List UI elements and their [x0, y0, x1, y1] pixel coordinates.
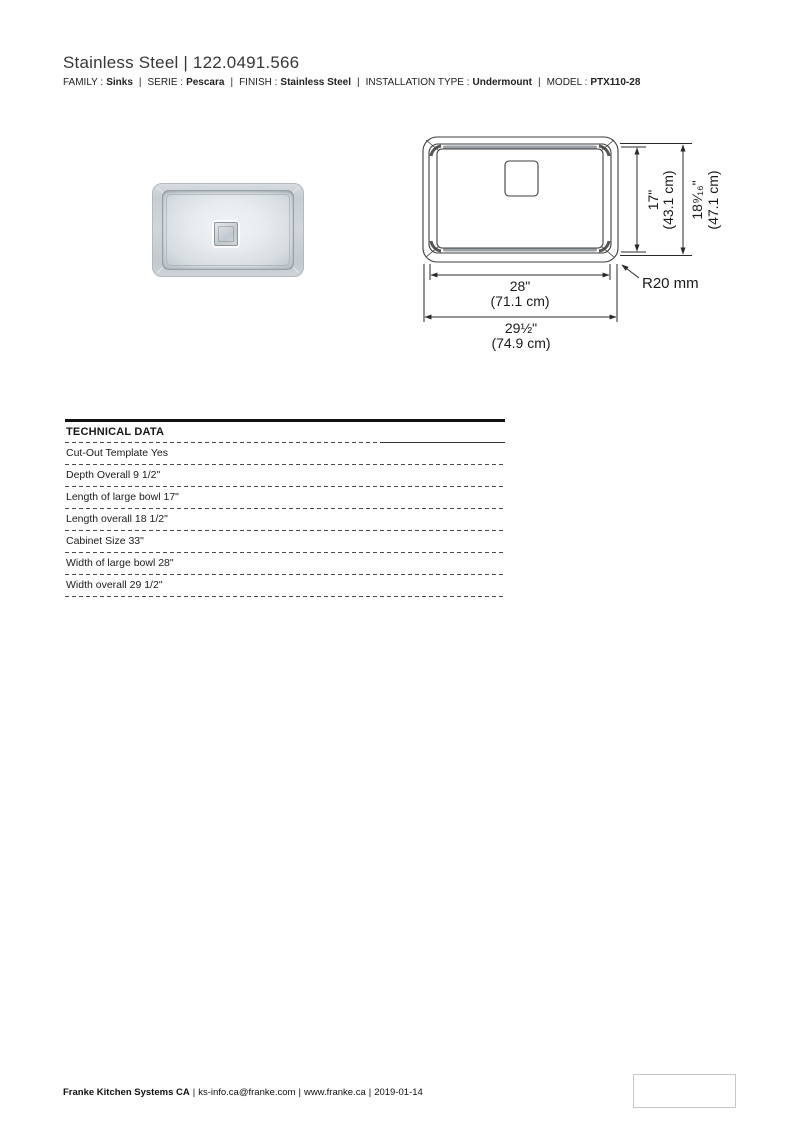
footer-website: www.franke.ca — [304, 1087, 366, 1098]
footer-date: 2019-01-14 — [374, 1087, 423, 1098]
attr-family-value: Sinks — [106, 77, 133, 88]
product-attributes: FAMILY :Sinks|SERIE :Pescara|FINISH :Sta… — [63, 77, 640, 88]
attr-finish-label: FINISH : — [239, 77, 277, 88]
drain-drawing — [505, 161, 538, 196]
table-row: Width of large bowl 28" — [65, 553, 505, 574]
row-value: 33" — [128, 535, 143, 547]
technical-drawing: 28" (71.1 cm) 29½" (74.9 cm) 17" (43.1 c… — [415, 130, 745, 362]
attr-separator: | — [230, 77, 233, 88]
table-row: Cabinet Size 33" — [65, 531, 505, 552]
attr-separator: | — [139, 77, 142, 88]
attr-separator: | — [538, 77, 541, 88]
table-row: Length of large bowl 17" — [65, 487, 505, 508]
product-photo — [152, 183, 304, 277]
row-label: Cabinet Size — [66, 535, 126, 547]
table-row: Cut-Out Template Yes — [65, 443, 505, 464]
dim-depth-inner-in: 17" — [645, 190, 661, 211]
footer-company: Franke Kitchen Systems CA — [63, 1087, 190, 1098]
dim-depth-overall-in: 18⁹⁄₁₆" — [689, 180, 705, 219]
row-label: Width overall — [66, 579, 127, 591]
row-value: 28" — [158, 557, 173, 569]
dim-width-overall-in: 29½" — [505, 320, 537, 336]
table-header-rule — [65, 442, 505, 443]
row-value: 17" — [164, 491, 179, 503]
table-row: Width overall 29 1/2" — [65, 575, 505, 596]
dim-width-inner-in: 28" — [510, 278, 531, 294]
row-value: Yes — [151, 447, 168, 459]
row-label: Length of large bowl — [66, 491, 161, 503]
row-value: 9 1/2" — [133, 469, 160, 481]
footer-stamp-box — [633, 1074, 736, 1108]
row-value: 18 1/2" — [135, 513, 168, 525]
attr-separator: | — [357, 77, 360, 88]
attr-serie-label: SERIE : — [148, 77, 184, 88]
attr-installation-label: INSTALLATION TYPE : — [366, 77, 470, 88]
spec-sheet-page: Stainless Steel | 122.0491.566 FAMILY :S… — [0, 0, 802, 1134]
row-label: Width of large bowl — [66, 557, 155, 569]
attr-finish-value: Stainless Steel — [280, 77, 351, 88]
attr-installation-value: Undermount — [473, 77, 532, 88]
dim-depth-overall-cm: (47.1 cm) — [705, 170, 721, 229]
page-title: Stainless Steel | 122.0491.566 — [63, 53, 299, 73]
attr-family-label: FAMILY : — [63, 77, 103, 88]
footer-separator: | — [369, 1087, 371, 1098]
attr-serie-value: Pescara — [186, 77, 224, 88]
dim-depth-inner-cm: (43.1 cm) — [660, 170, 676, 229]
attr-model-value: PTX110-28 — [590, 77, 640, 88]
table-row: Length overall 18 1/2" — [65, 509, 505, 530]
technical-data-table: TECHNICAL DATA Cut-Out Template Yes Dept… — [65, 419, 505, 597]
footer-separator: | — [298, 1087, 300, 1098]
dim-width-overall-cm: (74.9 cm) — [491, 335, 550, 351]
row-value: 29 1/2" — [130, 579, 163, 591]
footer-email: ks-info.ca@franke.com — [198, 1087, 295, 1098]
sink-bowl — [162, 190, 294, 270]
row-label: Length overall — [66, 513, 132, 525]
corner-radius-label: R20 mm — [642, 275, 699, 292]
attr-model-label: MODEL : — [547, 77, 588, 88]
table-header: TECHNICAL DATA — [65, 422, 505, 442]
row-label: Cut-Out Template — [66, 447, 148, 459]
row-label: Depth Overall — [66, 469, 130, 481]
footer: Franke Kitchen Systems CA|ks-info.ca@fra… — [63, 1087, 423, 1098]
sink-outline-drawing — [423, 137, 618, 262]
footer-separator: | — [193, 1087, 195, 1098]
sink-drain — [214, 222, 238, 246]
sink-rim — [152, 183, 304, 277]
row-rule — [65, 596, 505, 597]
table-row: Depth Overall 9 1/2" — [65, 465, 505, 486]
dim-width-inner-cm: (71.1 cm) — [490, 293, 549, 309]
